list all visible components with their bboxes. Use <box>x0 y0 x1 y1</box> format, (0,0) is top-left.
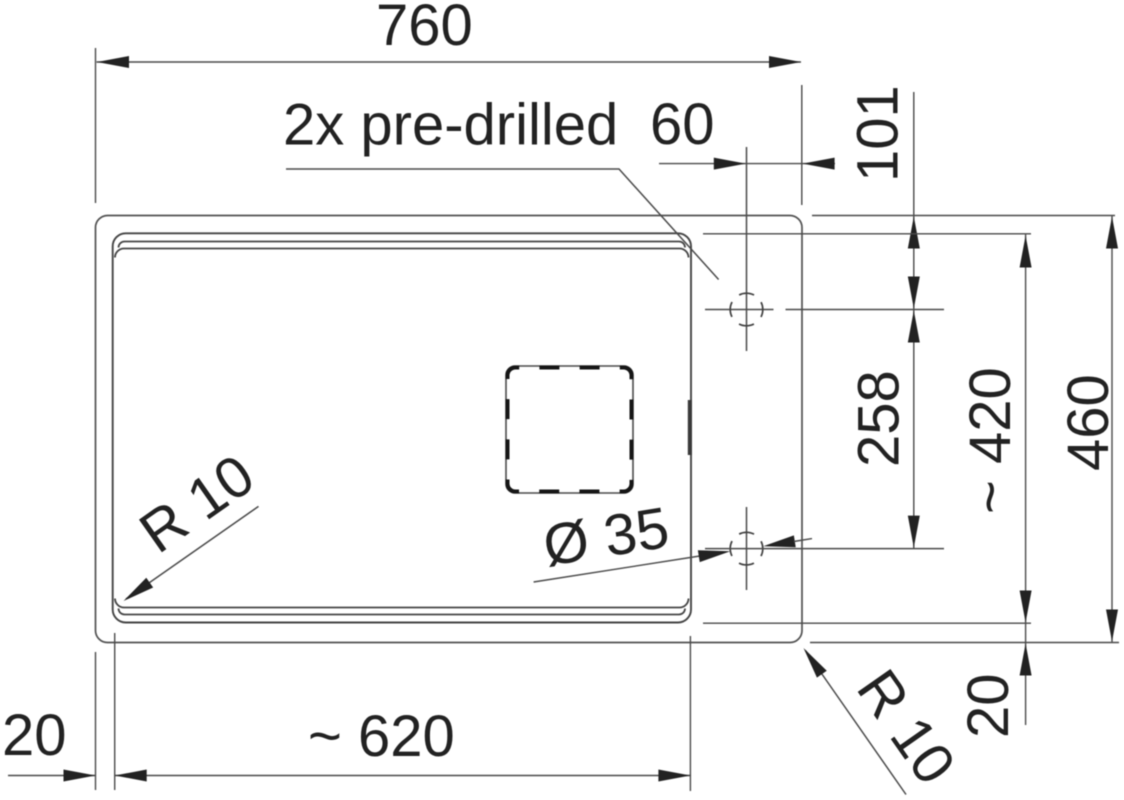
svg-text:R 10: R 10 <box>128 442 266 566</box>
svg-text:760: 760 <box>376 0 473 58</box>
svg-text:R 10: R 10 <box>844 658 968 796</box>
svg-text:101: 101 <box>846 85 911 182</box>
svg-text:460: 460 <box>1056 374 1121 471</box>
svg-text:Ø 35: Ø 35 <box>539 495 673 579</box>
svg-text:20: 20 <box>2 703 67 768</box>
svg-text:258: 258 <box>847 370 912 467</box>
svg-text:2x pre-drilled: 2x pre-drilled <box>283 93 618 158</box>
svg-text:~ 420: ~ 420 <box>958 367 1023 514</box>
svg-text:~ 620: ~ 620 <box>308 704 455 769</box>
svg-text:60: 60 <box>650 92 715 157</box>
svg-text:20: 20 <box>956 673 1021 738</box>
